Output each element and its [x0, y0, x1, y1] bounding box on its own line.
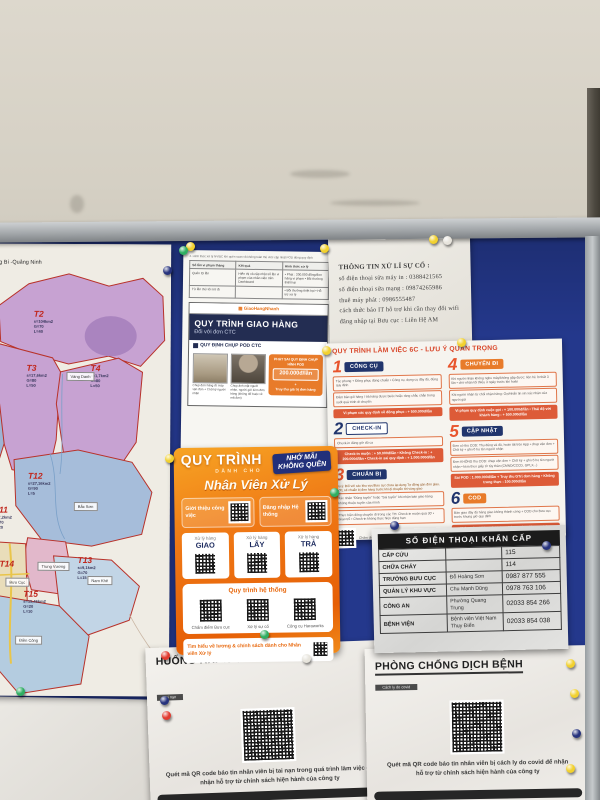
wall-scuff [290, 170, 350, 178]
poster-footer-text: Tìm hiểu về lương & chính sách dành cho … [187, 642, 307, 657]
table-cell: • Bồi thường thiệt hại • Hỗ trợ xử lý [282, 286, 329, 299]
fine-title: PHẠT SAI QUY ĐỊNH CHỤP HÌNH POD [271, 357, 321, 367]
push-pin [572, 729, 581, 738]
poster-handle-row: Xử lý hàngGIAOXử lý hàngLẤYXử lý hàngTRẢ [182, 531, 333, 579]
map-stat: L=5 [28, 491, 51, 497]
map-place-label: Bưu Cục [5, 578, 29, 587]
photo-caption: Chụp đơn hàng đi: Hộp vận đơn + Chữ ký n… [192, 384, 227, 396]
board-frame-right [585, 236, 600, 800]
map-stat: L=10 [23, 609, 46, 615]
photo-caption: Chụp ảnh mặt người nhận, người gửi kèm đ… [230, 385, 265, 401]
push-pin [566, 659, 575, 668]
violation-table: Số lần vi phạm thángKết quảHình thức xử … [189, 260, 330, 300]
step-label: COD [463, 493, 486, 503]
step-header: 5CẬP NHẬT [449, 422, 558, 440]
receiver-photo [231, 354, 266, 384]
push-pin [163, 266, 172, 275]
penalty-bar: Sai POD : 1.000.000đ/lần + Truy thu GTrị… [450, 472, 559, 488]
flyer-title: QUY TRÌNH GIAO HÀNG [194, 318, 322, 330]
map-stat: L=20 [0, 525, 12, 530]
step-detail-box: Khi người nhận không nghe máy/không gặp … [448, 371, 557, 388]
map-region-label: T11s=7,2km2G=70L=20 [0, 506, 12, 531]
pod-examples: Chụp đơn hàng đi: Hộp vận đơn + Chữ ký n… [188, 351, 327, 406]
process-step: 6CODBàn giao đầy đủ hàng giao không thàn… [451, 489, 560, 523]
process-step: 2CHECK-INCheck-in đúng giờ đủ ca [334, 419, 443, 449]
phone-cell: 02033 854 038 [503, 611, 561, 630]
phone-cell: CÔNG AN [380, 596, 447, 616]
step-detail-box: Đơn có thu COD: Thu đúng và đủ, hoàn tất… [450, 439, 559, 456]
push-pin [179, 246, 188, 255]
intro-label: Giới thiệu công việc [185, 505, 225, 519]
notice-footer-bar [374, 788, 583, 800]
push-pin [161, 651, 170, 660]
system-qr-item: Chấm điểm Bưu cục [189, 597, 232, 630]
system-qr-item: Xử lý sự cố [236, 596, 279, 629]
step-note: Lưu ý: Đối với các khu vực/Bưu cục chưa … [335, 482, 444, 493]
fine-box: PHẠT SAI QUY ĐỊNH CHỤP HÌNH POD 200.000đ… [268, 354, 323, 395]
emergency-phone-list: SỐ ĐIỆN THOẠI KHẨN CẤP CẤP CỨU115CHỮA CH… [372, 525, 569, 653]
push-pin [443, 236, 452, 245]
push-pin [330, 488, 339, 497]
system-qr-item: Công cụ Haraworks [284, 596, 327, 629]
accident-report-qr-code [240, 707, 296, 763]
qr-code [292, 596, 318, 622]
map-region-stats: s=27,16km2G=90L=5 [28, 480, 51, 496]
fine-amount: 200.000đ/lần [273, 369, 319, 381]
step-label: CẬP NHẬT [462, 426, 503, 437]
map-stat: L=50 [26, 383, 46, 388]
step-detail-box: Bàn giao đầy đủ hàng giao không thành cô… [451, 506, 560, 523]
wall-conduit [587, 88, 600, 220]
qr-code [245, 550, 269, 574]
flyer-subtitle: Đối với đơn CTC [194, 329, 322, 337]
step-detail-box: Khi người nhận từ chối nhận hàng: Gọi/nh… [448, 388, 557, 405]
handle-qr-box: Xử lý hàngLẤY [233, 531, 280, 578]
process-step: 3CHUẨN BỊLưu ý: Đối với các khu vực/Bưu … [335, 465, 445, 525]
handle-qr-box: Xử lý hàngGIAO [182, 532, 229, 579]
pod-photo-1: Chụp đơn hàng đi: Hộp vận đơn + Chữ ký n… [192, 353, 228, 400]
map-region-stats: s=17,6km2G=80L=50 [26, 372, 46, 388]
qr-code [193, 551, 217, 575]
step-detail-box: Xác nhận "Đúng tuyến" hoặc "Sai tuyến" k… [335, 492, 444, 509]
push-pin [320, 244, 329, 253]
phone-cell: Bệnh viện Việt Nam Thụy Điển [447, 613, 504, 632]
map-region-stats: s=104km2G=70L=40 [34, 318, 53, 334]
pod-photo-2: Chụp ảnh mặt người nhận, người gửi kèm đ… [230, 354, 266, 401]
map-region-name: T3 [27, 364, 47, 373]
qr-code [197, 597, 223, 623]
flyer-header: QUY TRÌNH GIAO HÀNG Đối với đơn CTC [189, 314, 327, 342]
delivery-process-doc: 4. Hình thức xử lý NV/BC khi quên scan v… [181, 250, 336, 456]
push-pin [162, 711, 171, 720]
slogan-badge: NHỚ MÃI KHÔNG QUÊN [272, 450, 331, 474]
table-cell: • Phạt : 200.000 đồng/đơn hàng vi phạm •… [282, 270, 329, 287]
pod-section-title: QUY ĐỊNH CHỤP POD CTC [200, 343, 261, 349]
step-number: 6 [451, 491, 461, 506]
push-pin [570, 689, 579, 698]
staff-process-poster: QUY TRÌNH DÀNH CHO NHỚ MÃI KHÔNG QUÊN Nh… [174, 446, 341, 655]
map-region-label: T3s=17,6km2G=80L=50 [26, 364, 46, 389]
poster-subtitle: DÀNH CHO [181, 468, 262, 475]
step-number: 1 [332, 359, 342, 374]
note-line: đăng nhập tại Bưu cục : Liên Hệ AM [340, 315, 464, 328]
qr-code [305, 500, 327, 522]
push-pin [429, 235, 438, 244]
push-pin [390, 521, 399, 530]
covid-report-notice: PHÒNG CHỐNG DỊCH BỆNH Cách ly do covid Q… [365, 645, 590, 800]
poster-role-name: Nhân Viên Xử Lý [181, 476, 331, 493]
step-detail-box: Check-in đúng giờ đủ ca [334, 436, 443, 449]
phone-row: BỆNH VIỆNBệnh viện Việt Nam Thụy Điển020… [380, 611, 561, 633]
push-pin [165, 454, 174, 463]
table-row: Quên ID lầnHiển thị và cập nhật số lần v… [189, 269, 328, 287]
step-detail-box: Đơn KHÔNG thu COD: chụp vận đơn + Chữ ký… [450, 455, 559, 472]
step-detail-box: Đảm bảo gói hàng / trả hàng được buộc ho… [333, 390, 442, 407]
step-header: 6COD [451, 489, 560, 507]
map-region-name: T11 [0, 506, 12, 515]
map-region-label: T14 [0, 560, 14, 569]
step-header: 4CHUYỂN ĐI [448, 355, 557, 373]
wall-scuff [70, 195, 84, 213]
map-place-label: Nam Khê [87, 576, 112, 585]
salary-policy-qr-code [311, 640, 329, 658]
intro-qr-box: Giới thiệu công việc [181, 497, 254, 528]
handle-main-label: GIAO [184, 540, 227, 550]
process-step: 4CHUYỂN ĐIKhi người nhận không nghe máy/… [448, 355, 557, 405]
handle-qr-box: Xử lý hàngTRẢ [285, 531, 332, 578]
handle-main-label: LẤY [236, 539, 279, 549]
doc-note: 4. Hình thức xử lý NV/BC khi quên scan v… [189, 254, 329, 260]
map-region-name: T13 [78, 556, 96, 565]
step-number: 4 [448, 357, 458, 372]
fine-extra: Truy thu giá trị đơn hàng [270, 387, 320, 392]
notice-caption: Quét mã QR code báo tin nhân viên bị tai… [160, 764, 380, 789]
phone-cell: BỆNH VIỆN [380, 614, 447, 634]
notice-tag: Cách ly do covid [375, 684, 417, 691]
accident-report-notice: HUỐNG KHẨN CẤP Tai nạn Quét mã QR code b… [145, 640, 391, 800]
push-pin [322, 346, 331, 355]
phone-table: CẤP CỨU115CHỮA CHÁY114TRƯỞNG BƯU CỤCĐỗ H… [378, 545, 562, 634]
qr-code [297, 550, 321, 574]
table-row: Từ lần thứ tới trở đi• Bồi thường thiệt … [189, 285, 328, 299]
table-cell: Hiển thị và cập nhật số lần vi phạm của … [236, 269, 283, 286]
map-region-name: T12 [28, 472, 51, 481]
system-qr-label: Công cụ Haraworks [284, 623, 327, 629]
square-bullet-icon [193, 343, 198, 348]
slogan-line-2: KHÔNG QUÊN [278, 461, 327, 472]
sixc-col-2: 4CHUYỂN ĐIKhi người nhận không nghe máy/… [448, 353, 560, 546]
panel-qr-row: Chấm điểm Bưu cụcXử lý sự cốCông cụ Hara… [187, 596, 329, 630]
process-step: 5CẬP NHẬTĐơn có thu COD: Thu đúng và đủ,… [449, 422, 558, 472]
qr-code [228, 501, 250, 523]
step-label: CHUẨN BỊ [347, 469, 386, 480]
step-label: CHECK-IN [346, 422, 388, 435]
system-process-panel: Quy trình hệ thống Chấm điểm Bưu cụcXử l… [182, 582, 333, 634]
phone-cell: Phường Quang Trung [447, 595, 504, 614]
map-region-name: T2 [34, 310, 53, 319]
penalty-bar: Vi phạm quy định cuộc gọi : + 100.000đ/l… [449, 405, 558, 421]
notice-title: PHÒNG CHỐNG DỊCH BỆNH [375, 658, 523, 676]
table-cell: Quên ID lần [189, 269, 236, 286]
map-title: ông Bí -Quảng Ninh [0, 260, 42, 266]
penalty-bar: Vi phạm các quy định về đồng phục : + 50… [333, 407, 442, 418]
map-place-label: Bắc Sơn [74, 502, 98, 511]
phone-cell: 02033 854 266 [503, 593, 561, 612]
push-pin [302, 654, 311, 663]
panel-title: Quy trình hệ thống [187, 586, 329, 595]
intro-qr-box: Đăng nhập Hệ thống [259, 496, 332, 527]
map-place-label: Điền Công [15, 636, 42, 645]
step-number: 5 [449, 424, 459, 439]
push-pin [160, 696, 169, 705]
map-poster: ông Bí -Quảng Ninh T2s=104km2G=70L=40T3s… [0, 244, 171, 697]
notice-footer-bar [158, 787, 384, 800]
map-region-name: T14 [0, 560, 14, 569]
handle-main-label: TRẢ [287, 539, 330, 549]
map-stat: L=50 [90, 383, 108, 388]
push-pin [16, 687, 25, 696]
map-region-label: T2s=104km2G=70L=40 [34, 310, 53, 335]
step-header: 1CÔNG CỤ [332, 357, 441, 375]
sixc-col-1: 1CÔNG CỤTác phong + Đồng phục đúng chuẩn… [332, 355, 444, 548]
table-cell [236, 286, 282, 299]
incident-info-note: THÔNG TIN XỬ LÍ SỰ CỐ :số điện thoại sửa… [328, 228, 472, 349]
bulletin-board-photo: ông Bí -Quảng Ninh T2s=104km2G=70L=40T3s… [0, 0, 600, 800]
push-pin [542, 541, 551, 550]
work-process-6c-doc: QUY TRÌNH LÀM VIỆC 6C - LƯU Ý QUAN TRỌNG… [326, 339, 566, 541]
delivery-flyer: ▦ GiaoHangNhanh QUY TRÌNH GIAO HÀNG Đối … [187, 302, 328, 408]
step-label: CHUYỂN ĐI [460, 358, 503, 369]
parcel-photo [193, 353, 228, 383]
intro-label: Đăng nhập Hệ thống [263, 504, 303, 518]
poster-footer: Tìm hiểu về lương & chính sách dành cho … [183, 637, 333, 663]
step-header: 3CHUẨN BỊ [335, 465, 444, 483]
step-label: CÔNG CỤ [345, 361, 383, 372]
poster-title: QUY TRÌNH [181, 453, 262, 467]
map-region-name: T15 [23, 590, 46, 599]
blank-sheet [0, 696, 157, 800]
notice-caption: Quét mã QR code báo tin nhân viên bị các… [377, 758, 579, 779]
map-region-stats: s=15,46km2G=20L=10 [23, 598, 46, 614]
ghn-logo-text: GiaoHangNhanh [244, 306, 279, 311]
qr-code [245, 596, 271, 622]
step-number: 2 [334, 421, 344, 436]
system-qr-label: Chấm điểm Bưu cục [189, 624, 232, 630]
system-qr-label: Xử lý sự cố [237, 623, 280, 629]
poster-intro-row: Giới thiệu công việcĐăng nhập Hệ thống [181, 496, 331, 528]
map-region-label: T12s=27,16km2G=90L=5 [28, 472, 51, 497]
push-pin [566, 764, 575, 773]
city-map [0, 244, 171, 697]
map-place-label: Vàng Danh [66, 372, 94, 381]
map-region-label: T15s=15,46km2G=20L=10 [23, 590, 46, 615]
penalty-bar: Check-in muộn : + 50.000đ/lần • Không Ch… [334, 448, 443, 464]
covid-report-qr-code [450, 700, 505, 755]
push-pin [457, 338, 466, 347]
process-step: 1CÔNG CỤTác phong + Đồng phục đúng chuẩn… [332, 357, 441, 407]
push-pin [260, 630, 269, 639]
table-cell: Từ lần thứ tới trở đi [189, 285, 235, 298]
map-stat: L=40 [34, 329, 53, 334]
map-place-label: Trung Vương [37, 562, 69, 571]
map-region-stats: s=7,2km2G=70L=20 [0, 514, 12, 530]
wall-scuff [330, 200, 420, 206]
step-detail-box: Tác phong + Đồng phục đúng chuẩn • Công … [333, 374, 442, 391]
step-header: 2CHECK-IN [334, 419, 443, 437]
